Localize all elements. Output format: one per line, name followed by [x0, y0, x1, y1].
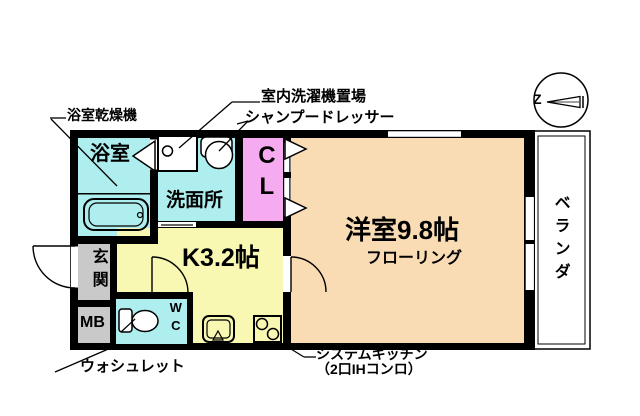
meter-box-label: MB	[80, 314, 105, 332]
bathroom-label: 浴室	[90, 143, 130, 165]
kitchen-room-door-opening	[283, 256, 291, 292]
window-veranda-mullion	[524, 240, 535, 244]
veranda-label: ベランダ	[551, 194, 569, 286]
wall-entrance-mb	[78, 300, 110, 307]
bath-dryer-label: 浴室乾燥機	[67, 108, 137, 123]
closet-label: CL	[253, 142, 279, 204]
wall-bath-bottom	[70, 236, 158, 244]
floor-plan: 浴室乾燥機 室内洗濯機置場 シャンプードレッサー ウォシュレット システムキッチ…	[0, 0, 640, 416]
window-top	[388, 131, 461, 137]
western-room-label: 洋室9.8帖	[345, 216, 459, 245]
closet-track-line	[283, 138, 284, 221]
washroom-label: 洗面所	[166, 191, 223, 212]
wall-washroom-closet	[235, 138, 243, 228]
toilet-label: WC	[168, 300, 182, 336]
entrance-door-arc	[33, 246, 75, 288]
kitchen-label: K3.2帖	[182, 245, 260, 273]
western-room-sublabel: フローリング	[366, 250, 462, 268]
shampoo-dresser-basin-icon	[206, 142, 233, 169]
system-kitchen-detail-label: （2口IHコンロ）	[316, 362, 422, 377]
washer-space-label: 室内洗濯機置場	[261, 89, 366, 106]
wall-top	[70, 130, 535, 138]
leader-washlet	[55, 366, 69, 372]
washlet-label: ウォシュレット	[80, 359, 185, 376]
entrance-label: 玄関	[89, 248, 107, 294]
washroom-sliding-door-line	[161, 224, 193, 225]
compass-icon	[534, 73, 588, 127]
entrance-door-opening	[71, 247, 78, 288]
toilet-bowl-icon	[132, 311, 158, 332]
closet-track-tick	[283, 172, 291, 178]
shampoo-dresser-label: シャンプードレッサー	[245, 110, 395, 127]
bathroom-divider-line	[78, 193, 150, 195]
compass-north-letter: Z	[533, 92, 542, 107]
